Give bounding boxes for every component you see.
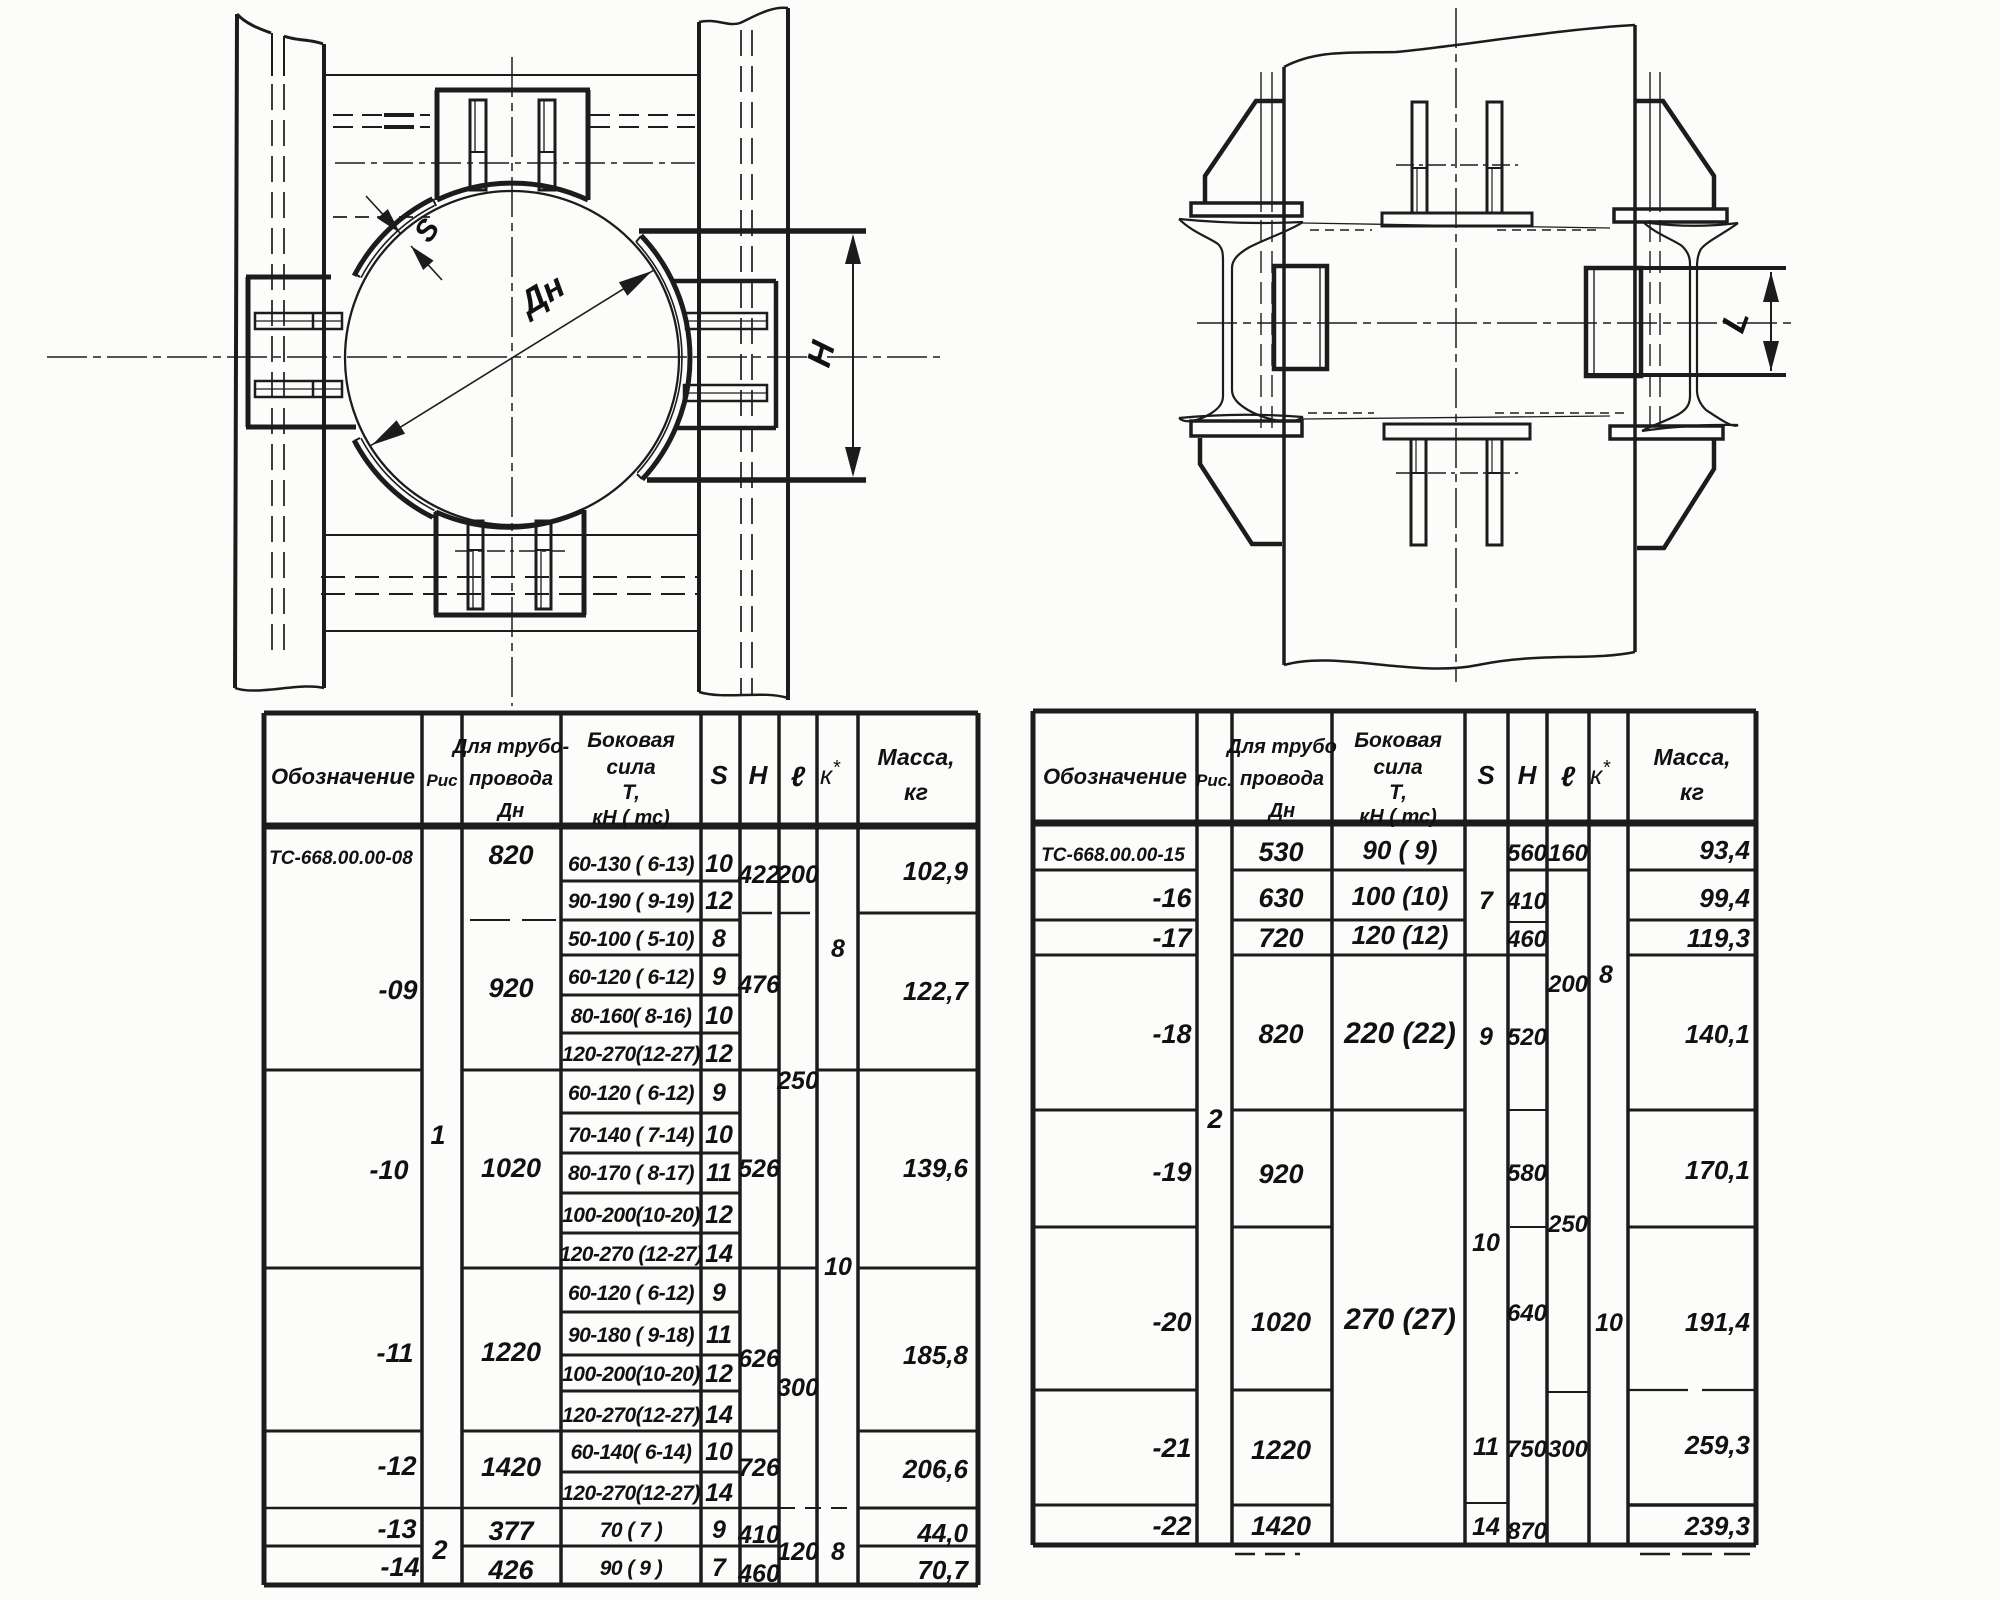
- svg-text:Рис: Рис: [426, 771, 458, 790]
- svg-text:1220: 1220: [481, 1337, 541, 1367]
- svg-text:-21: -21: [1152, 1433, 1191, 1463]
- svg-text:14: 14: [705, 1479, 733, 1507]
- svg-text:-18: -18: [1152, 1019, 1191, 1049]
- svg-text:10: 10: [705, 1121, 733, 1149]
- svg-text:Т,: Т,: [622, 781, 640, 804]
- svg-text:Обозначение: Обозначение: [1043, 764, 1187, 789]
- svg-text:7: 7: [712, 1554, 727, 1582]
- svg-text:120-270(12-27): 120-270(12-27): [562, 1404, 700, 1427]
- svg-text:9: 9: [712, 1516, 726, 1544]
- svg-text:460: 460: [737, 1560, 780, 1588]
- svg-text:сила: сила: [1373, 756, 1423, 779]
- svg-text:820: 820: [1258, 1019, 1303, 1049]
- svg-text:200: 200: [776, 861, 819, 889]
- svg-text:422: 422: [737, 861, 780, 889]
- svg-text:Масса,: Масса,: [878, 744, 955, 770]
- svg-text:726: 726: [738, 1454, 781, 1482]
- svg-text:ℓ: ℓ: [1561, 761, 1576, 792]
- svg-text:410: 410: [1506, 888, 1548, 915]
- svg-text:70-140 ( 7-14): 70-140 ( 7-14): [568, 1124, 695, 1147]
- svg-text:426: 426: [487, 1555, 534, 1585]
- svg-text:12: 12: [705, 1201, 733, 1229]
- svg-text:Н: Н: [1518, 760, 1538, 790]
- svg-text:10: 10: [1595, 1309, 1623, 1337]
- svg-text:1420: 1420: [481, 1452, 541, 1482]
- svg-text:60-120 ( 6-12): 60-120 ( 6-12): [568, 1082, 695, 1105]
- svg-text:ТС-668.00.00-15: ТС-668.00.00-15: [1041, 845, 1185, 866]
- svg-text:630: 630: [1258, 883, 1303, 913]
- svg-text:377: 377: [488, 1516, 535, 1546]
- svg-text:60-140( 6-14): 60-140( 6-14): [571, 1441, 692, 1464]
- svg-text:80-170 ( 8-17): 80-170 ( 8-17): [568, 1162, 695, 1185]
- svg-text:-10: -10: [369, 1155, 408, 1185]
- svg-text:160: 160: [1548, 840, 1589, 867]
- svg-text:119,3: 119,3: [1687, 923, 1751, 953]
- svg-text:300: 300: [777, 1374, 819, 1402]
- svg-text:сила: сила: [606, 756, 656, 779]
- svg-text:Масса,: Масса,: [1654, 744, 1731, 770]
- svg-text:10: 10: [705, 1002, 733, 1030]
- svg-text:Боковая: Боковая: [587, 729, 675, 752]
- svg-text:Дн: Дн: [1267, 800, 1296, 822]
- svg-text:14: 14: [705, 1240, 733, 1268]
- svg-text:11: 11: [706, 1321, 732, 1349]
- svg-text:9: 9: [712, 1279, 726, 1307]
- svg-text:-11: -11: [376, 1338, 413, 1368]
- svg-text:Боковая: Боковая: [1354, 729, 1442, 752]
- svg-text:170,1: 170,1: [1685, 1155, 1750, 1185]
- svg-text:90-190 ( 9-19): 90-190 ( 9-19): [568, 890, 695, 913]
- svg-text:410: 410: [737, 1521, 780, 1549]
- svg-text:9: 9: [1479, 1023, 1493, 1051]
- svg-text:60-120 ( 6-12): 60-120 ( 6-12): [568, 966, 695, 989]
- svg-text:191,4: 191,4: [1685, 1307, 1751, 1337]
- svg-text:8: 8: [831, 1538, 845, 1566]
- svg-text:кг: кг: [1680, 779, 1704, 805]
- svg-text:12: 12: [705, 1040, 733, 1068]
- svg-text:200: 200: [1547, 971, 1589, 998]
- svg-text:70,7: 70,7: [917, 1555, 969, 1585]
- svg-text:2: 2: [1206, 1104, 1222, 1134]
- svg-text:1220: 1220: [1251, 1435, 1311, 1465]
- svg-text:90 ( 9 ): 90 ( 9 ): [600, 1557, 663, 1580]
- svg-text:14: 14: [705, 1401, 733, 1429]
- svg-text:259,3: 259,3: [1684, 1430, 1751, 1460]
- svg-text:8: 8: [712, 925, 726, 953]
- svg-text:10: 10: [824, 1253, 852, 1281]
- svg-text:300: 300: [1548, 1436, 1589, 1463]
- svg-text:-17: -17: [1152, 923, 1193, 953]
- svg-text:120 (12): 120 (12): [1352, 920, 1449, 950]
- svg-text:100-200(10-20): 100-200(10-20): [562, 1204, 700, 1227]
- svg-text:206,6: 206,6: [902, 1454, 969, 1484]
- svg-text:ТС-668.00.00-08: ТС-668.00.00-08: [269, 848, 413, 869]
- svg-text:-12: -12: [377, 1451, 416, 1481]
- svg-text:100 (10): 100 (10): [1352, 881, 1449, 911]
- svg-text:Для трубо-: Для трубо-: [451, 736, 570, 758]
- svg-text:90 ( 9): 90 ( 9): [1362, 835, 1437, 865]
- svg-text:-22: -22: [1152, 1511, 1191, 1541]
- svg-text:530: 530: [1258, 837, 1303, 867]
- svg-text:-14: -14: [380, 1552, 419, 1582]
- svg-text:S: S: [710, 760, 728, 790]
- svg-text:10: 10: [705, 850, 733, 878]
- svg-text:99,4: 99,4: [1699, 883, 1750, 913]
- svg-text:122,7: 122,7: [903, 976, 970, 1006]
- svg-text:720: 720: [1258, 923, 1303, 953]
- svg-text:239,3: 239,3: [1684, 1511, 1751, 1541]
- svg-text:8: 8: [831, 935, 845, 963]
- svg-text:820: 820: [488, 840, 533, 870]
- svg-text:80-160( 8-16): 80-160( 8-16): [571, 1005, 692, 1028]
- svg-text:Рис.: Рис.: [1196, 771, 1232, 790]
- svg-text:870: 870: [1507, 1518, 1548, 1545]
- svg-text:120: 120: [777, 1538, 819, 1566]
- svg-text:920: 920: [1258, 1159, 1303, 1189]
- svg-text:90-180 ( 9-18): 90-180 ( 9-18): [568, 1324, 695, 1347]
- svg-text:185,8: 185,8: [903, 1340, 969, 1370]
- svg-text:Т,: Т,: [1389, 781, 1407, 804]
- svg-text:12: 12: [705, 887, 733, 915]
- svg-text:120-270(12-27): 120-270(12-27): [562, 1043, 700, 1066]
- svg-text:-13: -13: [377, 1514, 416, 1544]
- svg-text:10: 10: [705, 1438, 733, 1466]
- svg-text:50-100 ( 5-10): 50-100 ( 5-10): [568, 928, 695, 951]
- svg-text:1420: 1420: [1251, 1511, 1311, 1541]
- svg-text:250: 250: [776, 1067, 819, 1095]
- svg-text:120-270 (12-27): 120-270 (12-27): [559, 1243, 703, 1266]
- svg-text:12: 12: [705, 1360, 733, 1388]
- svg-text:60-120 ( 6-12): 60-120 ( 6-12): [568, 1282, 695, 1305]
- svg-text:кН ( тс): кН ( тс): [1359, 806, 1437, 828]
- svg-text:кг: кг: [904, 779, 928, 805]
- svg-text:139,6: 139,6: [903, 1153, 969, 1183]
- svg-text:Обозначение: Обозначение: [271, 764, 415, 789]
- svg-text:270 (27): 270 (27): [1343, 1303, 1456, 1336]
- svg-text:S: S: [1477, 760, 1495, 790]
- svg-text:1020: 1020: [481, 1153, 541, 1183]
- svg-text:626: 626: [738, 1345, 781, 1373]
- svg-text:526: 526: [738, 1155, 781, 1183]
- svg-text:102,9: 102,9: [903, 856, 969, 886]
- svg-text:100-200(10-20): 100-200(10-20): [562, 1363, 700, 1386]
- svg-text:14: 14: [1472, 1513, 1500, 1541]
- svg-text:2: 2: [431, 1535, 447, 1565]
- svg-text:-16: -16: [1152, 883, 1192, 913]
- svg-text:460: 460: [1506, 926, 1548, 953]
- svg-text:11: 11: [1473, 1433, 1499, 1461]
- svg-text:8: 8: [1599, 961, 1613, 989]
- svg-text:70 ( 7 ): 70 ( 7 ): [600, 1519, 663, 1542]
- svg-text:250: 250: [1547, 1211, 1589, 1238]
- svg-text:провода: провода: [469, 768, 553, 790]
- svg-text:10: 10: [1472, 1229, 1500, 1257]
- svg-text:-20: -20: [1152, 1307, 1191, 1337]
- svg-text:560: 560: [1507, 840, 1548, 867]
- svg-text:Для трубо: Для трубо: [1225, 736, 1337, 758]
- svg-text:580: 580: [1507, 1160, 1548, 1187]
- svg-text:9: 9: [712, 963, 726, 991]
- svg-text:120-270(12-27): 120-270(12-27): [562, 1482, 700, 1505]
- svg-text:7: 7: [1479, 887, 1494, 915]
- svg-text:220 (22): 220 (22): [1343, 1017, 1456, 1050]
- svg-text:1: 1: [430, 1120, 445, 1150]
- svg-text:750: 750: [1507, 1436, 1548, 1463]
- svg-text:Н: Н: [749, 760, 769, 790]
- svg-text:93,4: 93,4: [1699, 835, 1750, 865]
- svg-text:-19: -19: [1152, 1157, 1191, 1187]
- svg-text:провода: провода: [1240, 768, 1324, 790]
- svg-text:520: 520: [1507, 1024, 1548, 1051]
- svg-text:1020: 1020: [1251, 1307, 1311, 1337]
- svg-text:кН ( тс): кН ( тс): [592, 807, 670, 829]
- svg-text:Дн: Дн: [496, 800, 525, 822]
- svg-text:44,0: 44,0: [916, 1518, 968, 1548]
- svg-text:60-130 ( 6-13): 60-130 ( 6-13): [568, 853, 695, 876]
- svg-text:9: 9: [712, 1079, 726, 1107]
- svg-text:140,1: 140,1: [1685, 1019, 1750, 1049]
- svg-text:640: 640: [1507, 1300, 1548, 1327]
- svg-text:476: 476: [737, 971, 781, 999]
- svg-text:ℓ: ℓ: [791, 761, 806, 792]
- svg-text:11: 11: [706, 1159, 732, 1187]
- svg-text:-09: -09: [378, 975, 417, 1005]
- svg-text:920: 920: [488, 973, 533, 1003]
